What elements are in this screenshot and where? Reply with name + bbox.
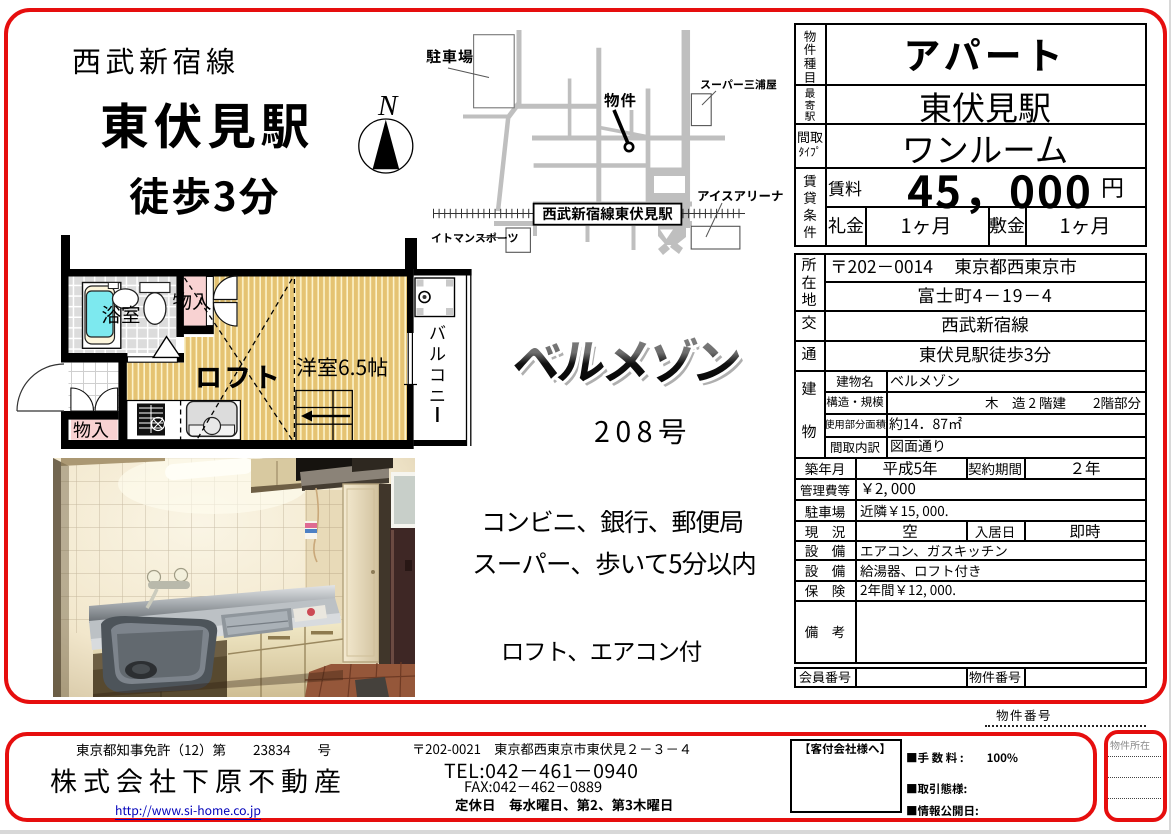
svg-text:スーパー三浦屋: スーパー三浦屋 — [700, 77, 777, 93]
svg-text:物入: 物入 — [73, 417, 109, 443]
svg-text:ベルメゾン: ベルメゾン — [508, 323, 745, 393]
svg-text:西武新宿線東伏見駅: 西武新宿線東伏見駅 — [542, 203, 673, 224]
svg-text:アイスアリーナ: アイスアリーナ — [697, 186, 784, 205]
svg-text:ニ: ニ — [429, 382, 446, 407]
svg-text:洋室6.5帖: 洋室6.5帖 — [296, 352, 388, 382]
svg-text:駐車場: 駐車場 — [426, 46, 474, 67]
svg-text:浴室: 浴室 — [102, 299, 141, 328]
svg-text:物入: 物入 — [173, 286, 212, 315]
svg-text:N: N — [377, 90, 399, 122]
svg-text:物件: 物件 — [604, 89, 637, 111]
svg-text:ロフト: ロフト — [195, 356, 282, 395]
